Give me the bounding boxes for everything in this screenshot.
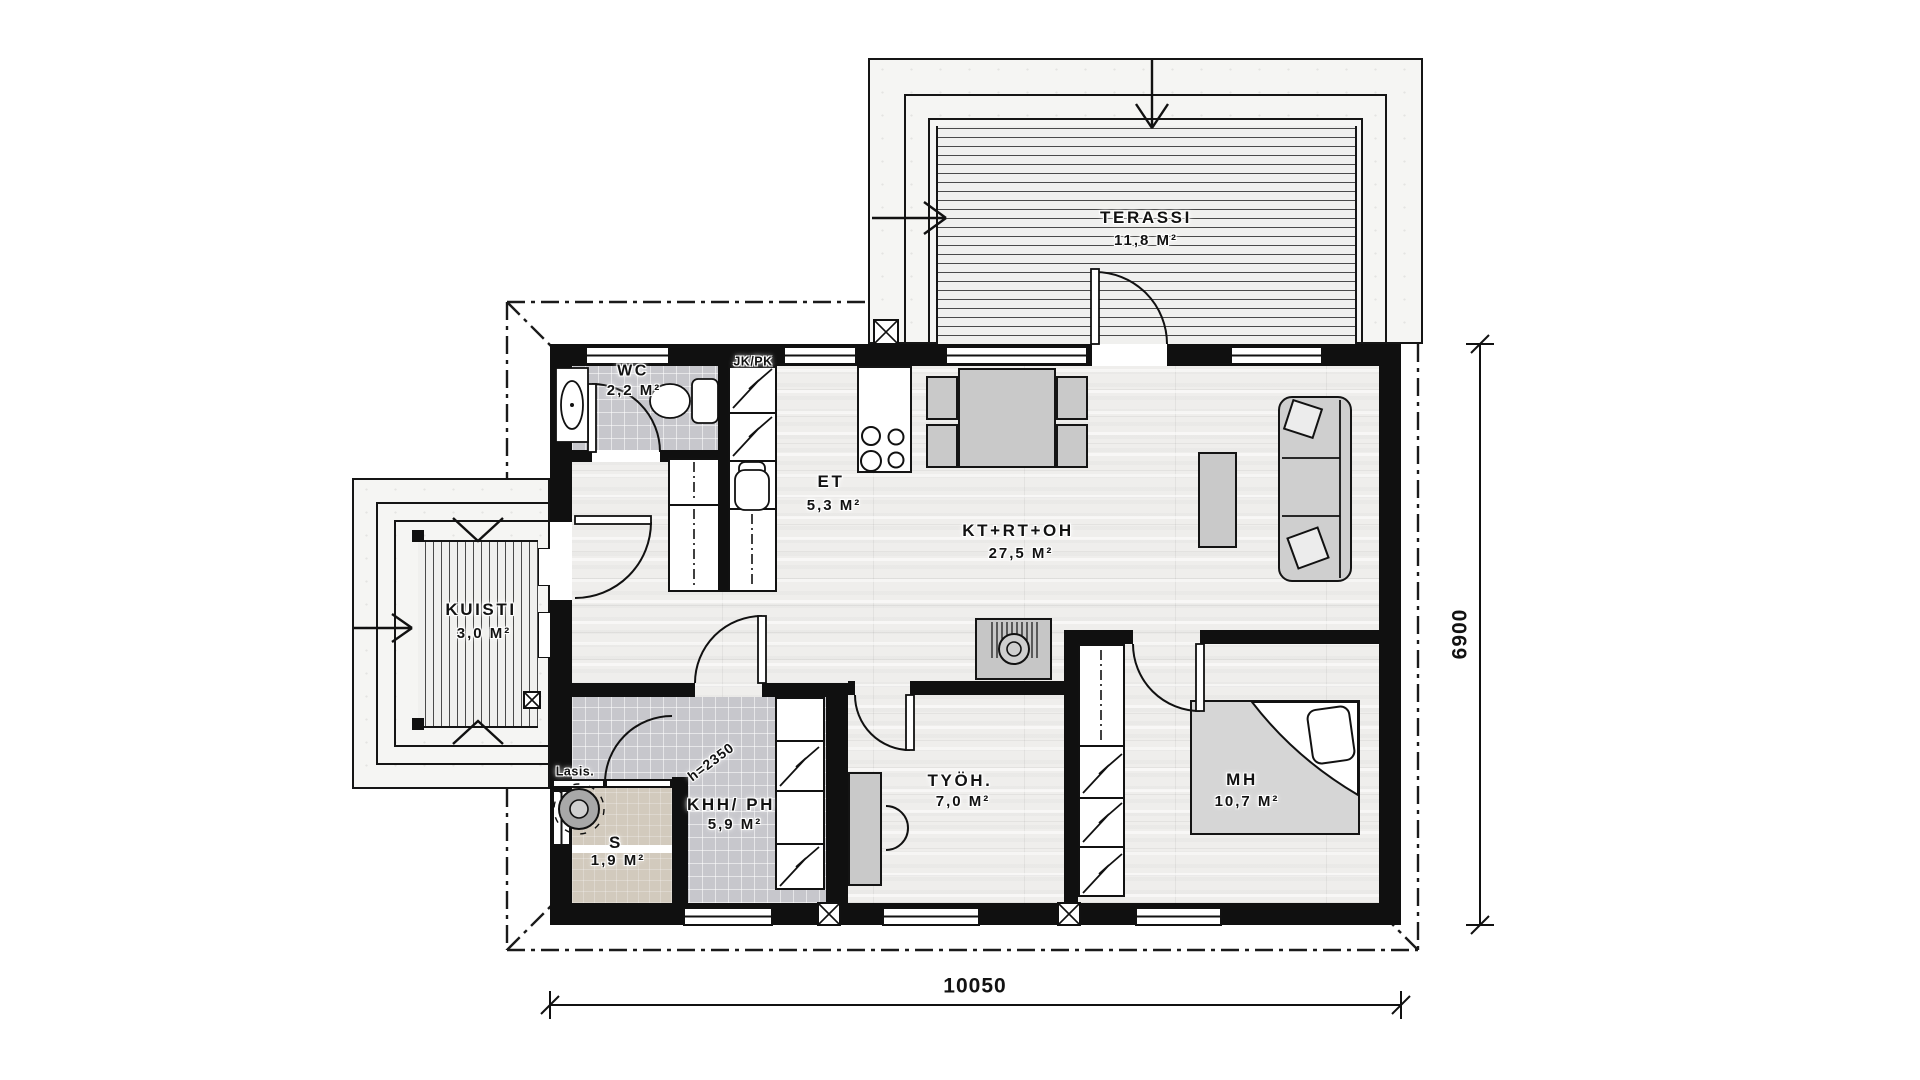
desk <box>848 772 882 886</box>
tv-stand <box>1198 452 1237 548</box>
annotation-lasis: Lasis. <box>556 765 594 780</box>
window <box>552 790 571 846</box>
porch-post <box>412 718 424 730</box>
annotation-jkpk: JK/PK <box>733 355 772 370</box>
unit-divider <box>1078 846 1125 848</box>
wall-tyoh-north <box>848 681 855 695</box>
room-label-s: S <box>609 833 623 853</box>
laundry-appliance-column <box>775 697 825 890</box>
dining-chair <box>1056 376 1088 420</box>
unit-divider <box>775 740 825 742</box>
wc-door-opening <box>592 450 660 462</box>
dining-table <box>958 368 1056 468</box>
terrace <box>868 58 1423 344</box>
dining-chair <box>926 376 958 420</box>
et-closet <box>668 458 720 592</box>
fridge-freezer-column <box>728 366 777 592</box>
wall-sauna-east <box>672 777 688 903</box>
porch <box>352 478 550 789</box>
unit-divider <box>728 412 777 414</box>
room-area-tyoh: 7,0 m² <box>936 793 991 811</box>
floor-plan-canvas: TERASSI 11,8 m² WC 2,2 m² JK/PK KUISTI 3… <box>0 0 1920 1080</box>
mh-wardrobe-column <box>1078 644 1125 897</box>
room-label-tyoh: TYÖH. <box>928 771 993 791</box>
dimension-height: 6900 <box>1447 609 1472 660</box>
dimension-width: 10050 <box>943 973 1006 998</box>
sauna-glass-wall <box>552 779 605 788</box>
room-label-et: ET <box>818 472 845 492</box>
unit-divider <box>1078 745 1125 747</box>
room-area-kt-rt-oh: 27,5 m² <box>989 545 1054 563</box>
room-label-mh: MH <box>1226 770 1258 790</box>
room-area-terassi: 11,8 m² <box>1114 232 1178 250</box>
exterior-wall-right <box>1379 344 1401 925</box>
wall-tyoh-north <box>910 681 1078 695</box>
wall-mh-north <box>1200 630 1379 644</box>
unit-divider <box>728 508 777 510</box>
window <box>945 346 1088 365</box>
room-label-terassi: TERASSI <box>1100 208 1192 228</box>
unit-divider <box>775 790 825 792</box>
room-label-kt-rt-oh: KT+RT+OH <box>962 521 1073 541</box>
wall-khh-tyoh <box>826 683 848 903</box>
room-area-et: 5,3 m² <box>807 497 862 515</box>
dining-chair <box>926 424 958 468</box>
porch-post <box>412 530 424 542</box>
unit-divider <box>1078 797 1125 799</box>
wall-khh-north <box>762 683 826 697</box>
room-area-mh: 10,7 m² <box>1215 793 1280 811</box>
room-area-s: 1,9 m² <box>591 852 646 870</box>
window <box>882 907 980 926</box>
closet-divider <box>668 504 720 506</box>
front-door-opening <box>550 522 572 600</box>
room-label-khh-ph: KHH/ PH <box>687 795 775 815</box>
wall-mh-north <box>1078 630 1133 644</box>
window <box>783 346 857 365</box>
room-area-kuisti: 3,0 m² <box>457 625 512 643</box>
room-label-kuisti: KUISTI <box>445 600 516 620</box>
fireplace <box>975 618 1052 680</box>
terrace-door-opening <box>1092 344 1167 366</box>
window <box>1135 907 1222 926</box>
unit-divider <box>728 460 777 462</box>
sofa <box>1278 396 1352 582</box>
window <box>683 907 773 926</box>
wall-khh-north <box>572 683 695 697</box>
room-label-wc: WC <box>617 361 649 380</box>
room-area-khh-ph: 5,9 m² <box>708 816 763 834</box>
wall-tyoh-east <box>1064 630 1078 903</box>
unit-divider <box>775 843 825 845</box>
kitchen-counter <box>857 366 912 473</box>
bed <box>1190 700 1360 835</box>
room-area-wc: 2,2 m² <box>607 382 662 400</box>
dining-chair <box>1056 424 1088 468</box>
window <box>1230 346 1323 365</box>
sauna-door-leaf <box>605 779 672 788</box>
